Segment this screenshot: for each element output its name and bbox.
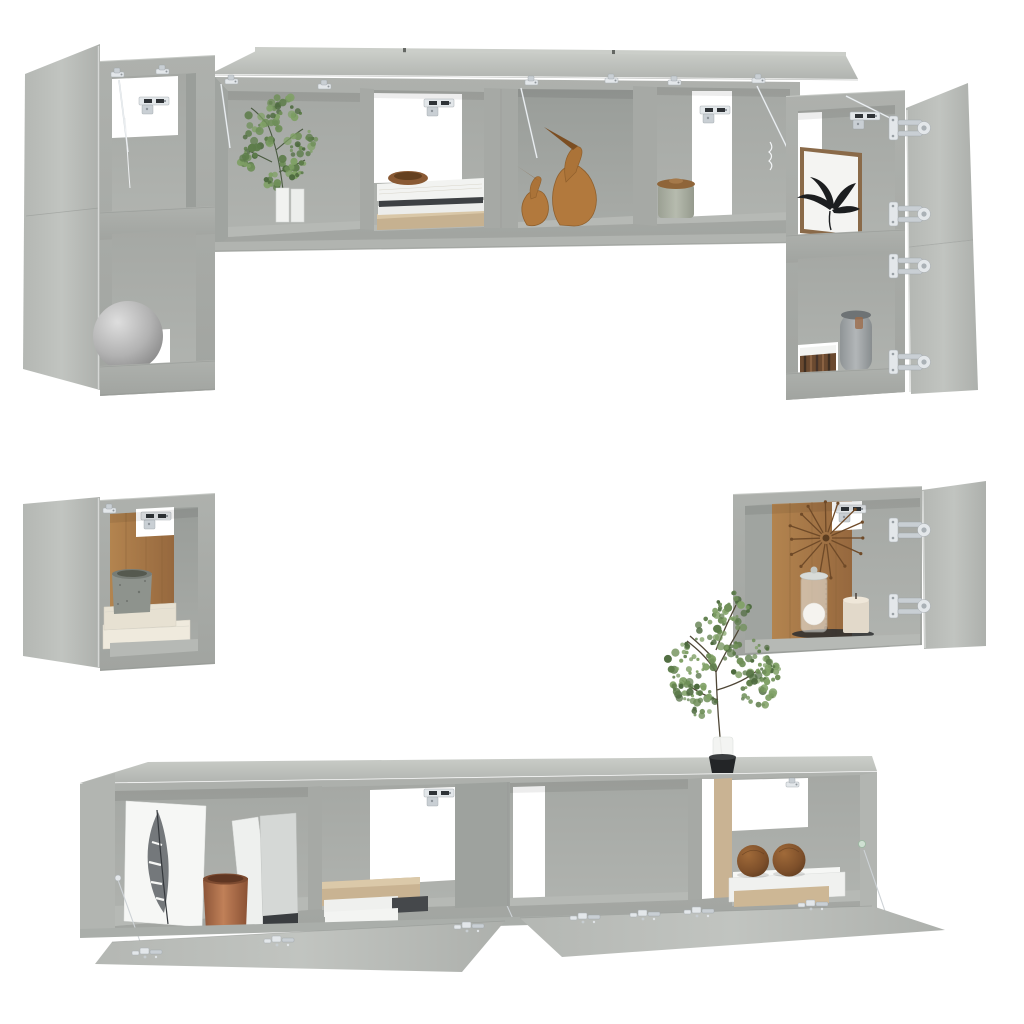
bottom-tv-stand: Hanging TV stands with flip-down doors, …	[80, 756, 945, 972]
open-door-panel	[23, 497, 100, 668]
compartment-plant	[215, 75, 360, 249]
book-stack	[377, 178, 486, 230]
product-photo: Wall shelf cabinets with flip-up doors h…	[0, 0, 1024, 1024]
mid-right-cube-cabinet: Small wall cube cabinet with sunburst cl…	[733, 481, 986, 656]
compartment-art	[797, 96, 902, 241]
compartment-jar	[657, 74, 793, 224]
decorative-bowl-inner	[394, 172, 422, 180]
compartment-upper	[111, 65, 196, 215]
scene-canvas: Wall shelf cabinets with flip-up doors h…	[0, 0, 1024, 1024]
compartment-feather	[115, 787, 308, 947]
top-left-cabinet-stack: Stacked wall cabinets with open side doo…	[23, 44, 215, 396]
top-right-cabinet-stack: Stacked wall cabinets with doors open ri…	[786, 83, 978, 400]
jar-candle	[800, 567, 828, 633]
wooden-sphere	[773, 844, 806, 877]
side-panel-left	[80, 773, 115, 937]
top-shelf-unit: Wall shelf cabinets with flip-up doors h…	[210, 47, 858, 252]
compartment-empty	[510, 779, 688, 906]
storage-jar	[657, 178, 695, 218]
mid-left-cube-cabinet: Small wall cube cabinet with stone pot a…	[23, 493, 215, 671]
open-door-panel	[23, 44, 100, 390]
open-door-panel	[922, 481, 986, 649]
sphere-lamp	[93, 301, 163, 371]
open-door-upper	[906, 83, 973, 247]
compartment	[103, 507, 198, 657]
compartment-bird-figurines	[517, 74, 633, 228]
stone-pot	[112, 569, 152, 614]
feather-art-print	[124, 801, 206, 927]
lift-stay-clip	[225, 75, 238, 84]
compartment-books	[374, 90, 486, 231]
copper-pot	[203, 874, 248, 932]
leaf-art-print	[797, 147, 862, 239]
wooden-sphere	[737, 845, 769, 877]
glass-knob	[859, 841, 866, 848]
white-plant-pot	[276, 188, 289, 222]
compartment-spheres	[729, 775, 860, 907]
vase	[840, 311, 872, 373]
white-plant-pot	[291, 189, 304, 222]
glass-knob	[115, 875, 121, 881]
pillar-candle	[843, 593, 869, 633]
